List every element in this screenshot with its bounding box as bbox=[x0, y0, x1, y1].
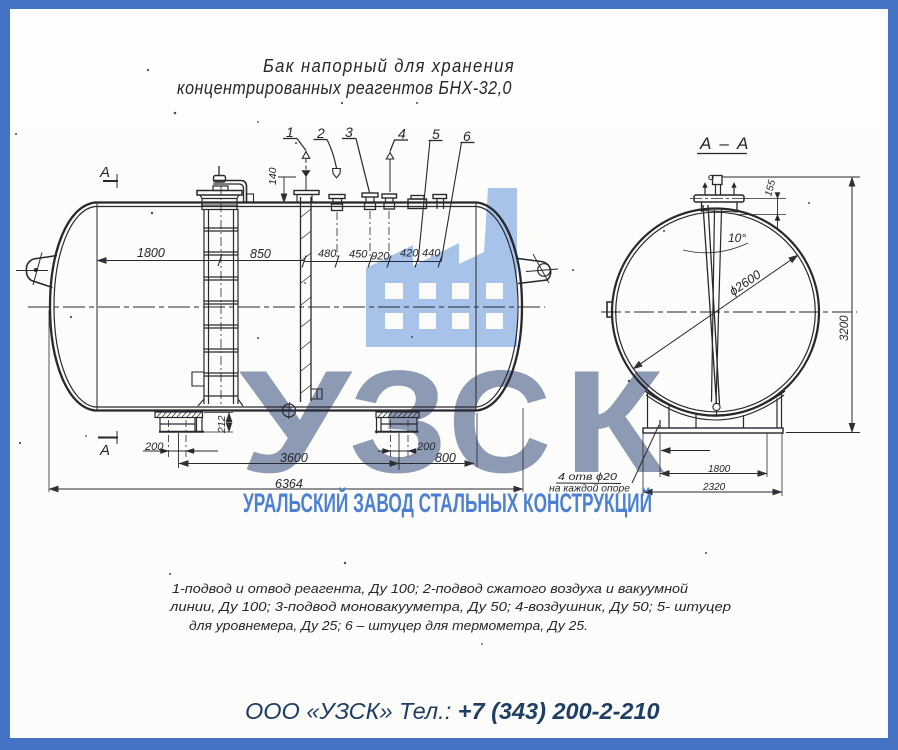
svg-text:A: A bbox=[99, 164, 110, 181]
svg-text:1800: 1800 bbox=[137, 246, 165, 260]
svg-text:6: 6 bbox=[463, 128, 471, 144]
svg-text:212: 212 bbox=[216, 415, 228, 434]
svg-text:4 отв ϕ20: 4 отв ϕ20 bbox=[558, 472, 618, 483]
svg-text:420: 420 bbox=[400, 248, 419, 260]
svg-text:3: 3 bbox=[345, 124, 353, 140]
svg-text:С: С bbox=[448, 340, 551, 504]
svg-text:A – A: A – A bbox=[699, 134, 750, 153]
svg-text:200: 200 bbox=[144, 441, 164, 453]
svg-text:3200: 3200 bbox=[839, 315, 851, 341]
svg-text:A: A bbox=[99, 442, 110, 459]
svg-text:480: 480 bbox=[318, 248, 337, 260]
svg-text:УРАЛЬСКИЙ ЗАВОД СТАЛЬНЫХ КОНСТ: УРАЛЬСКИЙ ЗАВОД СТАЛЬНЫХ КОНСТРУКЦИЙ bbox=[243, 487, 652, 518]
svg-text:2: 2 bbox=[316, 125, 325, 141]
svg-text:1: 1 bbox=[286, 124, 294, 140]
svg-text:1-подвод и отвод реагента, Ду: 1-подвод и отвод реагента, Ду 100; 2-под… bbox=[172, 581, 688, 596]
svg-text:5: 5 bbox=[432, 126, 440, 142]
svg-text:концентрированных реагентов: концентрированных реагентов БНХ-32,0 bbox=[177, 77, 512, 98]
svg-text:140: 140 bbox=[267, 167, 279, 185]
svg-text:ООО «УЗСК» Тел.: +7 (343) 200-: ООО «УЗСК» Тел.: +7 (343) 200-2-210 bbox=[245, 698, 660, 724]
svg-text:4: 4 bbox=[398, 126, 406, 142]
svg-text:2320: 2320 bbox=[702, 482, 726, 493]
svg-text:Бак напорный для хранения: Бак напорный для хранения bbox=[263, 55, 515, 76]
svg-text:З: З bbox=[349, 340, 448, 503]
svg-text:850: 850 bbox=[250, 247, 271, 261]
svg-text:800: 800 bbox=[435, 451, 456, 465]
svg-text:для уровнемера, Ду 25; 6 – шту: для уровнемера, Ду 25; 6 – штуцер для те… bbox=[189, 618, 588, 633]
svg-text:450: 450 bbox=[349, 249, 368, 261]
svg-text:200: 200 bbox=[416, 441, 436, 453]
svg-text:линии, Ду 100; 3-подвод монов: линии, Ду 100; 3-подвод моновакууметра, … bbox=[169, 599, 731, 614]
svg-text:920: 920 bbox=[371, 251, 390, 263]
svg-text:3600: 3600 bbox=[280, 451, 308, 465]
svg-text:10°: 10° bbox=[728, 231, 746, 245]
svg-text:1800: 1800 bbox=[708, 464, 731, 475]
svg-text:440: 440 bbox=[422, 248, 441, 260]
